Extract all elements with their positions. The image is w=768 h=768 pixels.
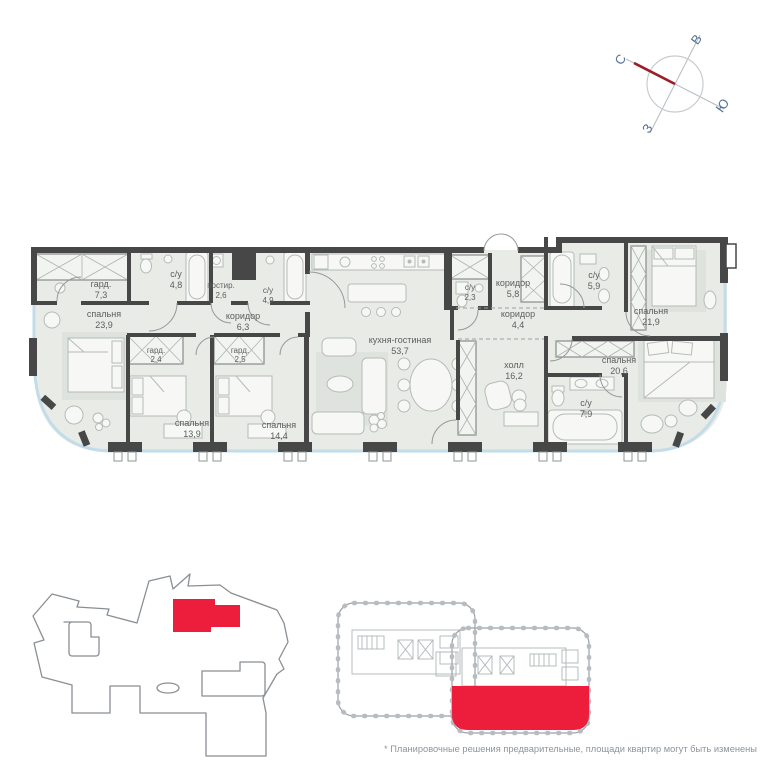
key-core-a: [358, 636, 458, 664]
svg-text:гард.: гард.: [91, 279, 112, 289]
shaft: [232, 250, 256, 280]
svg-text:2,4: 2,4: [150, 355, 162, 364]
svg-text:с/у: с/у: [170, 269, 182, 279]
side-table: [665, 415, 677, 427]
svg-text:2,6: 2,6: [215, 291, 227, 300]
site-building: [64, 622, 99, 656]
key-highlighted-apartment: [452, 686, 589, 730]
svg-text:2,3: 2,3: [464, 293, 476, 302]
footer-disclaimer: * Планировочные решения предварительные,…: [384, 744, 757, 754]
svg-text:5,8: 5,8: [507, 289, 520, 299]
desk: [504, 412, 538, 426]
room-label: с/у5,9: [588, 270, 601, 291]
toilet: [552, 390, 564, 406]
svg-text:спальня: спальня: [634, 306, 668, 316]
kitchen-island: [348, 284, 406, 302]
site-building: [157, 683, 179, 693]
svg-text:13,9: 13,9: [183, 429, 201, 439]
svg-text:16,2: 16,2: [505, 371, 523, 381]
key-core-b: [436, 648, 578, 686]
room-label: с/у4,9: [262, 286, 274, 305]
svg-text:20,6: 20,6: [610, 366, 628, 376]
svg-text:спальня: спальня: [87, 309, 121, 319]
floorplan-canvas: С В Ю З: [0, 0, 768, 768]
svg-text:спальня: спальня: [175, 418, 209, 428]
cabinet: [580, 254, 596, 264]
toilet: [141, 259, 152, 273]
svg-text:4,9: 4,9: [262, 296, 274, 305]
compass-needle: [634, 63, 675, 84]
site-boundary: [33, 574, 288, 756]
room-label: с/у2,3: [464, 283, 476, 302]
armchair: [641, 415, 663, 433]
chair: [514, 399, 526, 411]
svg-text:кухня-гостиная: кухня-гостиная: [369, 335, 432, 345]
toilet: [599, 289, 610, 303]
svg-text:6,3: 6,3: [237, 322, 250, 332]
closet: [458, 341, 476, 435]
sink: [475, 284, 483, 292]
svg-text:с/у: с/у: [465, 283, 475, 292]
svg-text:с/у: с/у: [588, 270, 600, 280]
svg-text:7,9: 7,9: [580, 409, 593, 419]
room-label: с/у7,9: [580, 398, 593, 419]
svg-text:4,8: 4,8: [170, 280, 183, 290]
chair: [679, 400, 697, 416]
svg-text:коридор: коридор: [496, 278, 530, 288]
svg-text:холл: холл: [504, 360, 524, 370]
svg-text:спальня: спальня: [602, 355, 636, 365]
compass-south-label: Ю: [712, 96, 732, 115]
svg-text:гард.: гард.: [231, 346, 249, 355]
svg-text:2,5: 2,5: [234, 355, 246, 364]
site-plan: [33, 574, 288, 756]
armchair: [322, 338, 356, 356]
facade-ledge: [726, 244, 736, 268]
svg-text:4,4: 4,4: [512, 320, 525, 330]
svg-text:коридор: коридор: [501, 309, 535, 319]
svg-text:с/у: с/у: [263, 286, 273, 295]
chair: [704, 291, 716, 309]
svg-text:гард.: гард.: [147, 346, 165, 355]
compass-west-label: З: [639, 121, 656, 136]
sink: [266, 256, 274, 264]
page: С В Ю З: [0, 0, 768, 768]
svg-text:коридор: коридор: [226, 311, 260, 321]
closet: [450, 255, 490, 279]
vanity: [570, 377, 614, 390]
svg-text:спальня: спальня: [262, 420, 296, 430]
sofa: [312, 412, 364, 434]
site-building: [202, 662, 265, 696]
coffee-table: [327, 376, 353, 392]
svg-text:53,7: 53,7: [391, 346, 409, 356]
dining-table: [410, 359, 452, 411]
room-label: холл16,2: [504, 360, 524, 381]
sink: [599, 268, 609, 281]
compass-rose: С В Ю З: [611, 32, 732, 136]
floor-key-plan: [338, 603, 589, 733]
svg-text:14,4: 14,4: [270, 431, 288, 441]
sofa: [362, 358, 386, 414]
sink: [164, 255, 172, 263]
compass-east-label: В: [688, 32, 705, 48]
pendant: [392, 308, 401, 317]
apartment-floor-plan: гард.7,3 с/у4,8 постир.2,6 с/у4,9 спальн…: [29, 234, 736, 461]
chair: [44, 312, 60, 328]
armchair: [65, 406, 83, 424]
pendant: [362, 308, 371, 317]
site-highlighted-building: [173, 599, 240, 632]
svg-text:7,3: 7,3: [95, 290, 108, 300]
svg-text:5,9: 5,9: [588, 281, 601, 291]
svg-text:постир.: постир.: [207, 281, 235, 290]
compass-north-label: С: [611, 51, 629, 67]
room-label: с/у4,8: [170, 269, 183, 290]
closet: [36, 254, 128, 280]
svg-text:23,9: 23,9: [95, 320, 113, 330]
svg-text:с/у: с/у: [580, 398, 592, 408]
svg-text:21,9: 21,9: [642, 317, 660, 327]
pendant: [377, 308, 386, 317]
